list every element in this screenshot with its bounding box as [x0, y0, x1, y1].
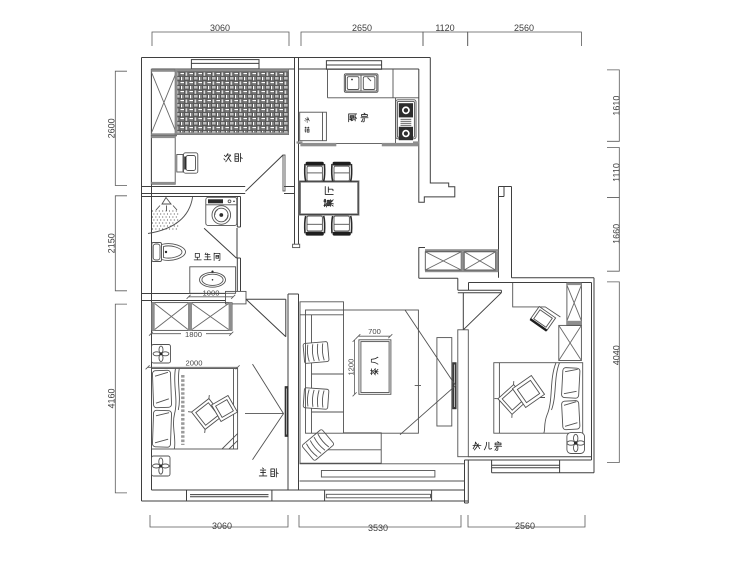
svg-text:1000: 1000	[203, 288, 220, 297]
svg-text:3060: 3060	[210, 23, 230, 33]
svg-text:2600: 2600	[107, 118, 117, 138]
svg-text:4160: 4160	[107, 388, 117, 408]
svg-text:4040: 4040	[612, 345, 622, 365]
svg-text:2650: 2650	[352, 23, 372, 33]
svg-text:1660: 1660	[612, 224, 622, 244]
svg-text:1120: 1120	[435, 23, 454, 33]
svg-text:1610: 1610	[612, 96, 622, 116]
svg-text:1110: 1110	[612, 163, 622, 182]
svg-text:3060: 3060	[212, 521, 232, 531]
svg-text:2000: 2000	[186, 359, 203, 368]
svg-text:3530: 3530	[368, 523, 388, 533]
svg-text:1200: 1200	[347, 359, 356, 376]
svg-text:700: 700	[368, 327, 381, 336]
svg-text:2150: 2150	[107, 233, 117, 253]
svg-text:2560: 2560	[515, 521, 535, 531]
svg-text:2560: 2560	[514, 23, 534, 33]
svg-text:1800: 1800	[185, 330, 202, 339]
